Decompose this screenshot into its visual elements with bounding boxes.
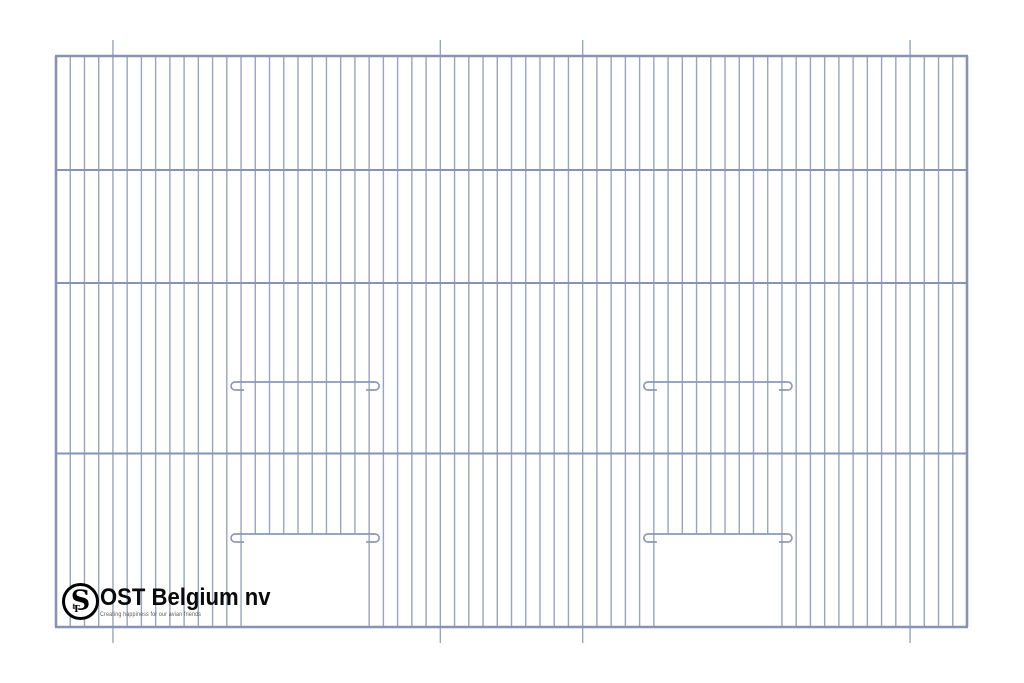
ost-logo: S T OST Belgium nv Creating happiness fo… <box>62 581 312 633</box>
door-latch-bar <box>231 382 379 390</box>
door-opening-top-bar <box>644 534 792 542</box>
cage-front-drawing: S T OST Belgium nv Creating happiness fo… <box>0 0 1024 683</box>
monogram-letter-t: T <box>73 606 80 615</box>
ost-monogram-icon: S T <box>62 583 99 620</box>
company-tagline: Creating happiness for our avian friends <box>100 611 252 619</box>
logo-text-block: OST Belgium nv Creating happiness for ou… <box>100 587 285 619</box>
company-name: OST Belgium nv <box>100 587 271 609</box>
door-latch-bar <box>644 382 792 390</box>
door-opening-top-bar <box>231 534 379 542</box>
